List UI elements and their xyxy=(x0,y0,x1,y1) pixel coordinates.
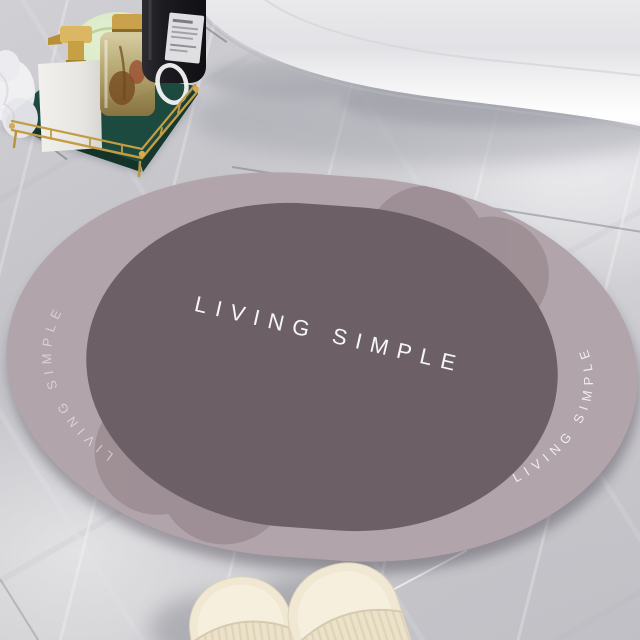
bath-mat: LIVING SIMPLE LIVING SIMPLE LIVING SIMPL… xyxy=(0,153,640,580)
pump-spout xyxy=(48,34,62,45)
shampoo-label xyxy=(165,12,205,63)
pump-head xyxy=(60,26,92,43)
scene-art: LIVING SIMPLE LIVING SIMPLE LIVING SIMPL… xyxy=(0,0,640,640)
bathroom-scene: LIVING SIMPLE LIVING SIMPLE LIVING SIMPL… xyxy=(0,0,640,640)
